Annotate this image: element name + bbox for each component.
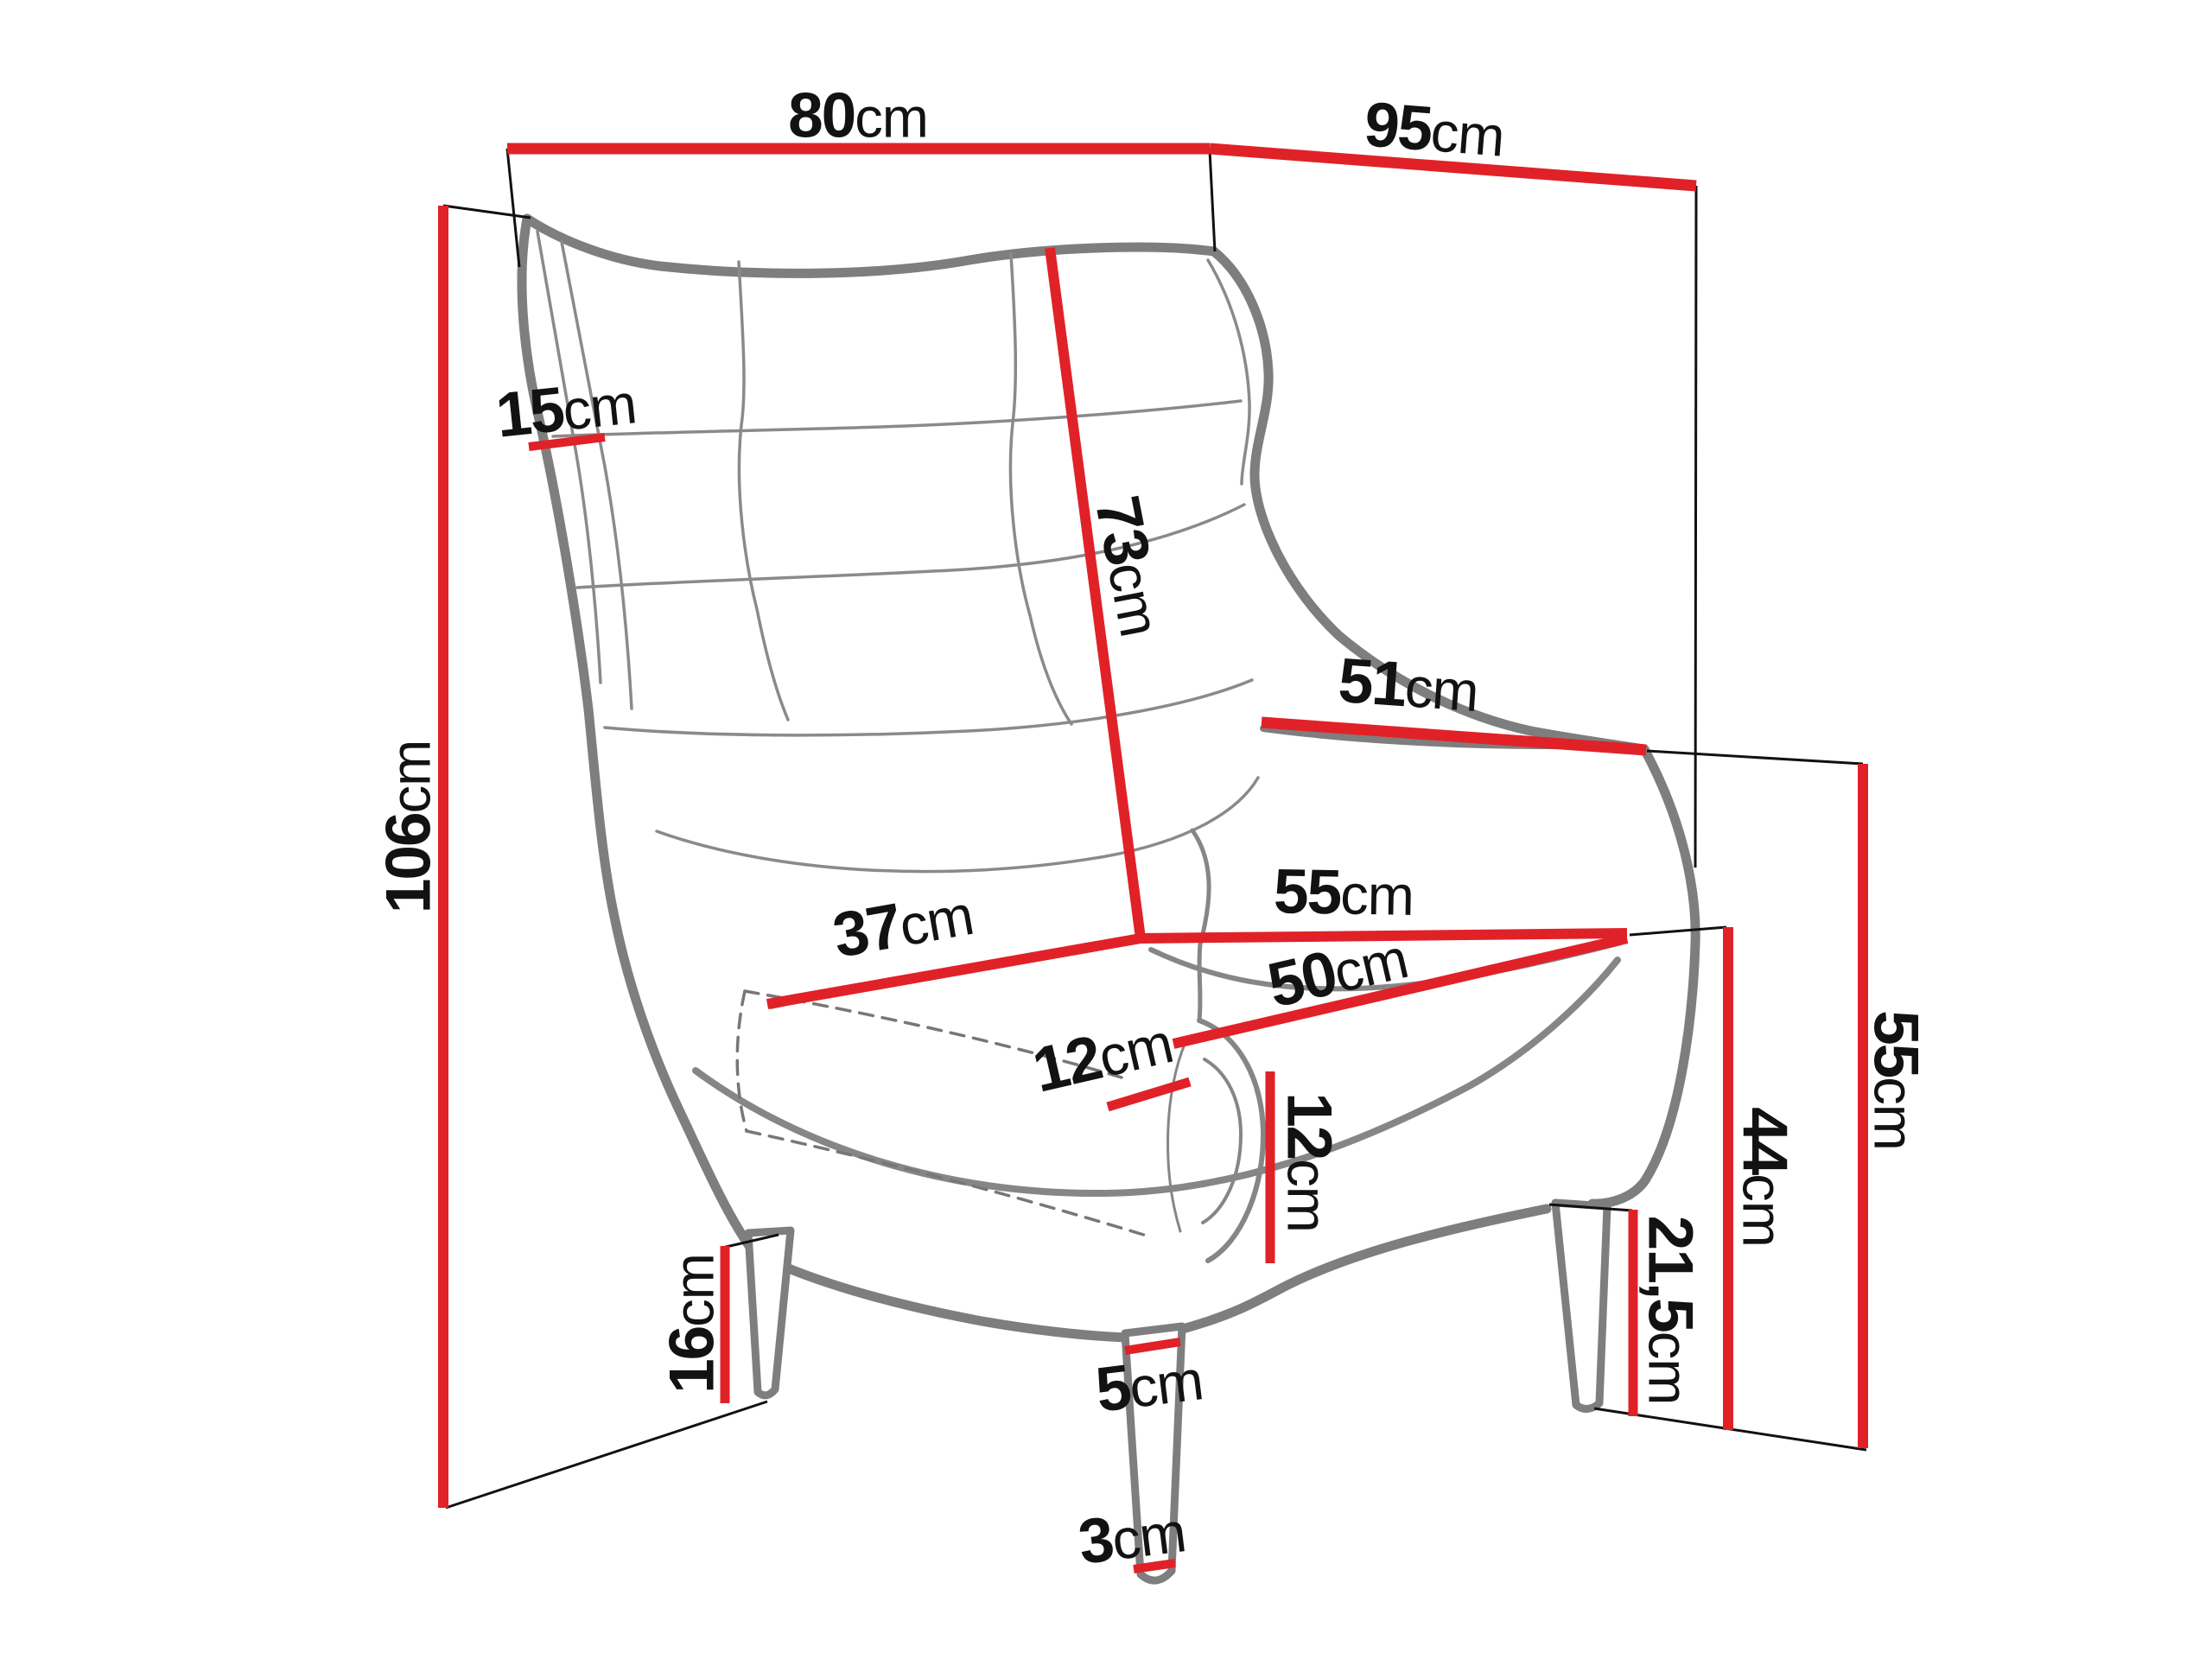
chair-base-front-right [1179,1209,1547,1330]
dim-label-back-leg-height: 16cm [661,1254,724,1394]
dim-label-seat-height: 44cm [1733,1107,1796,1247]
dim-label-wing-thickness: 15cm [493,370,639,448]
dim-label-seat-width: 55cm [1273,860,1414,925]
chair-outline [522,219,1695,1338]
dim-label-leg-top-width: 5cm [1092,1346,1205,1421]
dim-label-arm-floor-height: 55cm [1865,1010,1928,1150]
dim-label-armrest-height: 12cm [1278,1092,1341,1232]
chair-base-front-left [753,1252,1125,1338]
diagram-canvas: 80cm 95cm 15cm 106cm 73cm 51cm 37cm 55cm… [0,0,2212,1659]
back-right-leg [1555,1203,1607,1409]
dim-label-leg-tip-width: 3cm [1075,1498,1188,1573]
dim-label-top-width: 80cm [788,85,928,148]
dim-label-base-clearance: 21,5cm [1639,1216,1702,1405]
dim-label-seatback-width: 51cm [1337,649,1481,721]
dim-label-total-height: 106cm [378,741,441,913]
front-left-leg [748,1230,791,1395]
dim-label-top-depth: 95cm [1362,92,1506,166]
